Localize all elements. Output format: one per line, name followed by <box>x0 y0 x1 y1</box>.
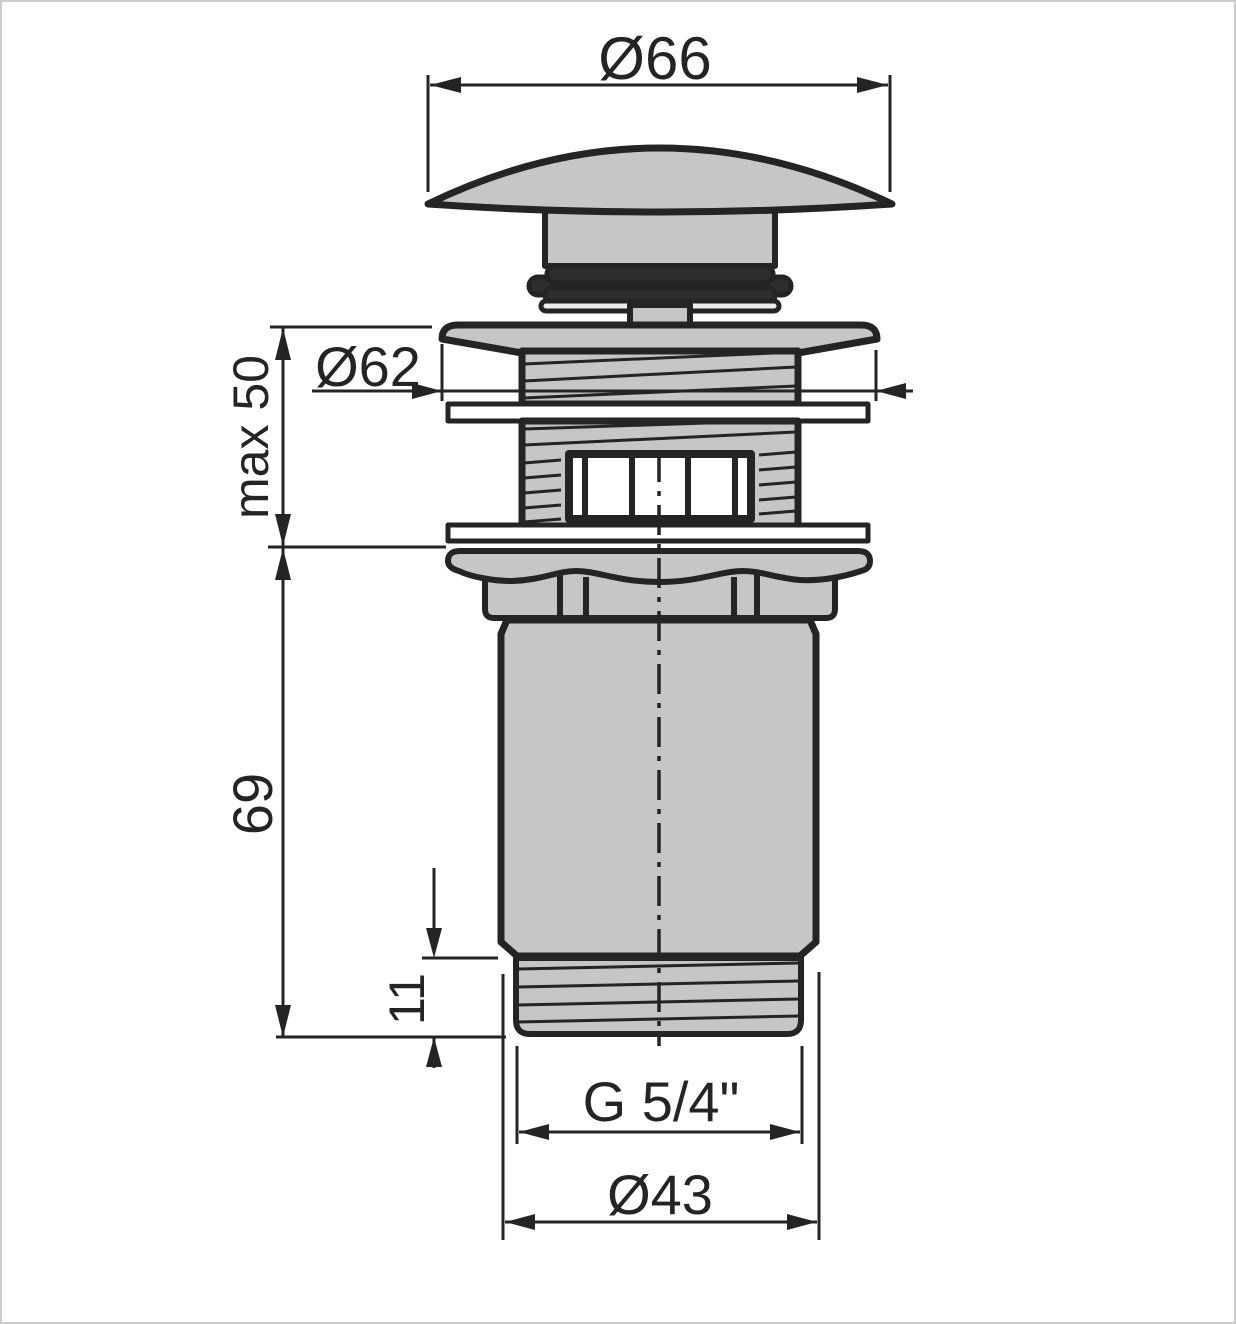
valve-part <box>428 148 892 1046</box>
outlet-diameter-label: Ø43 <box>607 1163 713 1226</box>
cap-diameter-label: Ø66 <box>598 25 711 92</box>
thread-size-label: G 5/4" <box>583 1070 740 1133</box>
seal-ring-top <box>547 266 773 283</box>
upper-thread <box>522 351 798 404</box>
dim-thread-size: G 5/4" <box>517 1046 802 1144</box>
body-height-label: 69 <box>221 773 284 835</box>
drain-valve-technical-drawing: Ø66 Ø62 max 50 69 <box>0 0 1236 1324</box>
thread-length-label: 11 <box>379 973 435 1025</box>
flange-diameter-label: Ø62 <box>315 335 421 398</box>
max-clamp-label: max 50 <box>223 355 279 519</box>
dim-body-height: 69 <box>221 548 506 1037</box>
cap <box>428 148 892 212</box>
drawing-canvas: Ø66 Ø62 max 50 69 <box>0 0 1236 1324</box>
